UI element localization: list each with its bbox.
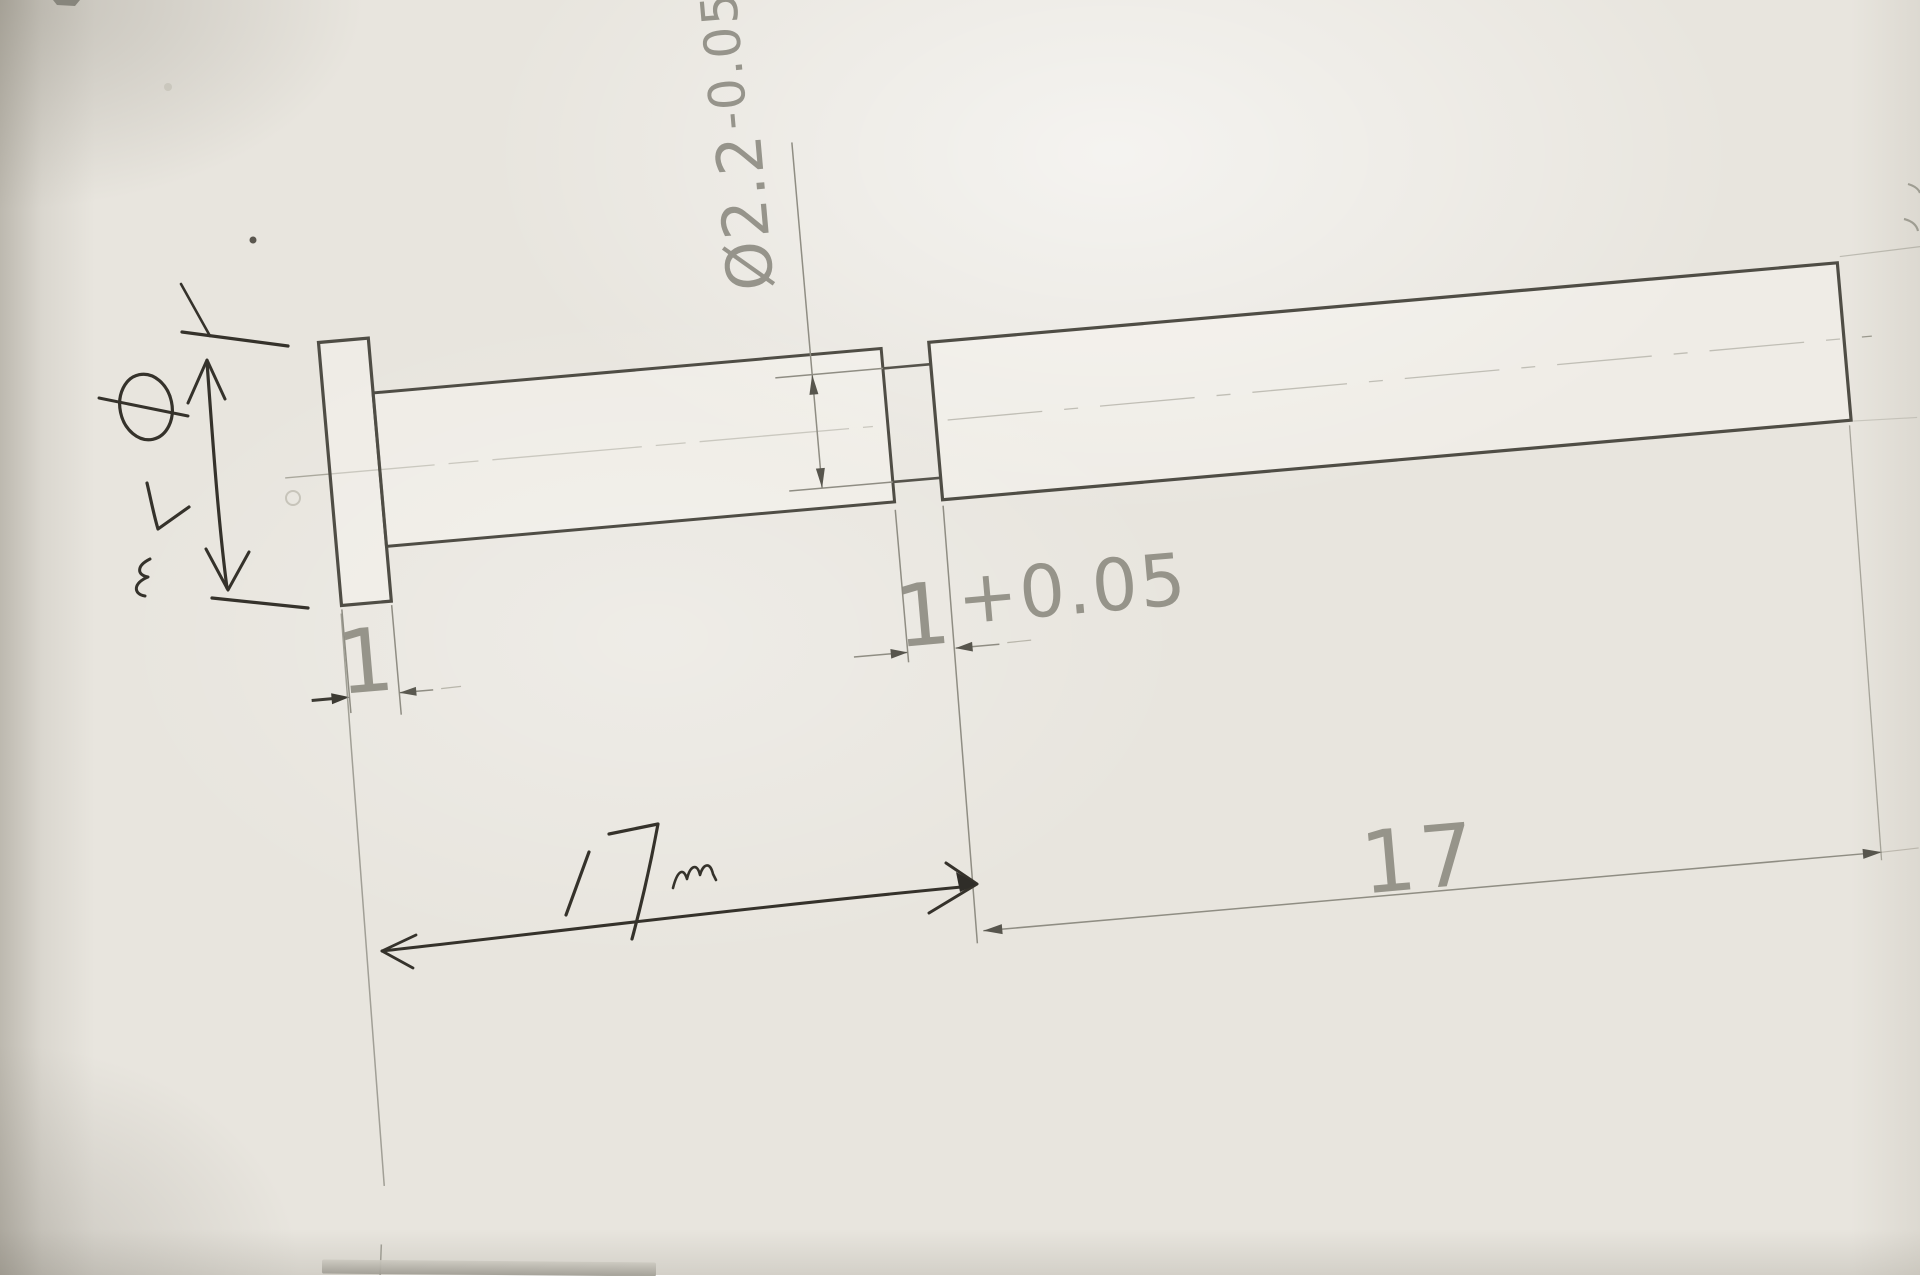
hand-digit-7 <box>147 483 189 529</box>
arrowhead-left <box>983 924 1003 936</box>
printed-part-view: Ø2.2-0.05 1 1 +0.05 17 <box>246 0 1920 1275</box>
neck-width-tolerance: +0.05 <box>954 537 1191 641</box>
hand-unit-m <box>136 559 150 596</box>
hand-dimension-line <box>382 886 972 951</box>
hand-extension-tick-bottom <box>212 598 308 608</box>
arrowhead-left <box>399 687 417 697</box>
cut-off-label-fragment <box>1904 184 1920 231</box>
dimension-line-fragment <box>1007 640 1031 642</box>
handwritten-left-length-dimension <box>382 824 977 968</box>
hand-extension-tick-top <box>182 332 288 346</box>
hand-digit-1 <box>566 852 589 915</box>
arrowhead-left <box>955 642 973 653</box>
engineering-drawing: Ø2.2-0.05 1 1 +0.05 17 <box>0 0 1920 1275</box>
right-length-extension-line <box>1844 425 1888 860</box>
neck-diameter-label: Ø2.2-0.05 <box>690 0 789 294</box>
hand-diameter-symbol <box>99 369 188 444</box>
paper-edge-notch <box>53 0 80 6</box>
paper-bottom-edge-shadow <box>322 1260 656 1276</box>
paper-speck <box>164 83 172 91</box>
dimension-line-fragment <box>441 686 461 688</box>
arrowhead-right <box>1863 847 1883 859</box>
hand-tick-overshoot <box>181 284 210 336</box>
hand-unit-m <box>673 865 716 888</box>
photographed-drawing-sheet: Ø2.2-0.05 1 1 +0.05 17 <box>0 0 1920 1275</box>
second-shaft-outline <box>929 263 1851 500</box>
handwritten-flange-diameter-dimension <box>99 284 308 608</box>
first-shaft-outline <box>373 348 894 546</box>
ink-speck <box>250 237 257 244</box>
neck-width-value: 1 <box>891 564 954 668</box>
dimension-line-fragment <box>1882 848 1919 852</box>
extension-line-fragment-top-right <box>1840 246 1920 256</box>
neck-diameter-tolerance: -0.05 <box>690 0 760 133</box>
right-length-value: 17 <box>1357 805 1483 915</box>
extension-line-fragment-bottom-right <box>1853 415 1917 423</box>
faint-ring-mark <box>286 491 300 505</box>
flange-thickness-value: 1 <box>333 607 398 714</box>
